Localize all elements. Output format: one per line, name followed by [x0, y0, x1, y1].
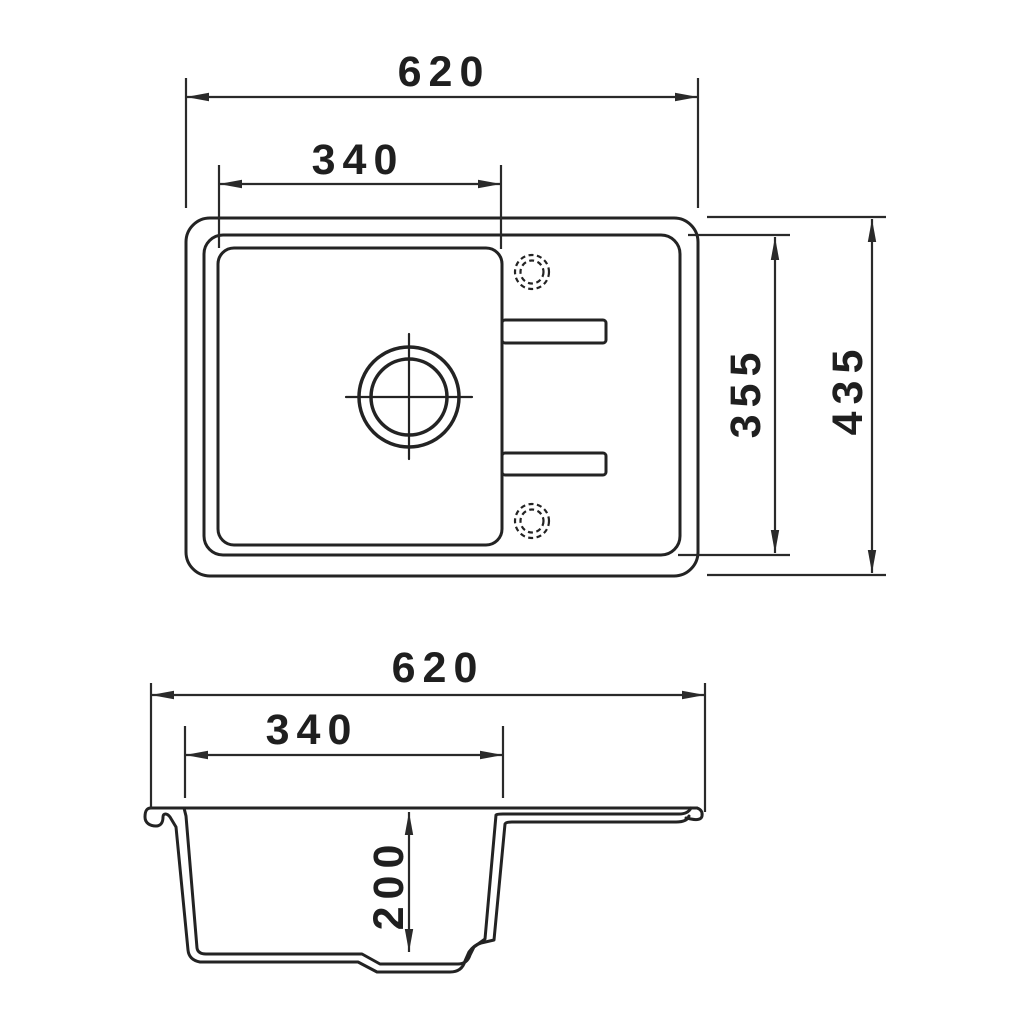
dimension-label-355: 355	[722, 346, 770, 439]
section-outer-contour	[145, 808, 689, 972]
dimension-section-width-620: 620	[151, 644, 705, 812]
dimension-inner-depth-355: 355	[678, 235, 790, 555]
drainer-slot-lower	[502, 453, 606, 475]
tap-hole-bottom-inner	[521, 510, 544, 533]
dimension-top-bowl-width-340: 340	[219, 136, 501, 249]
dimension-label-340-section: 340	[266, 706, 359, 754]
dimension-label-340: 340	[312, 136, 405, 184]
drain-outlet	[346, 334, 472, 459]
dimension-label-620-section: 620	[392, 644, 485, 692]
drainer-slot-upper	[502, 320, 606, 343]
tap-hole-bottom	[515, 504, 549, 538]
drawing-svg: 620 340 355 435	[0, 0, 1024, 1024]
sink-top-view	[186, 218, 698, 576]
sink-dimension-drawing: 620 340 355 435	[0, 0, 1024, 1024]
tap-hole-top	[515, 255, 549, 289]
dimension-label-435: 435	[824, 343, 872, 436]
sink-inner-rim	[204, 235, 680, 555]
dimension-section-bowl-width-340: 340	[185, 706, 503, 798]
sink-section-view	[145, 808, 702, 972]
dimension-label-620: 620	[398, 48, 491, 96]
tap-hole-top-inner	[521, 261, 544, 284]
dimension-label-200: 200	[365, 838, 413, 931]
section-inner-contour	[184, 808, 691, 964]
dimension-bowl-depth-200: 200	[365, 812, 413, 952]
